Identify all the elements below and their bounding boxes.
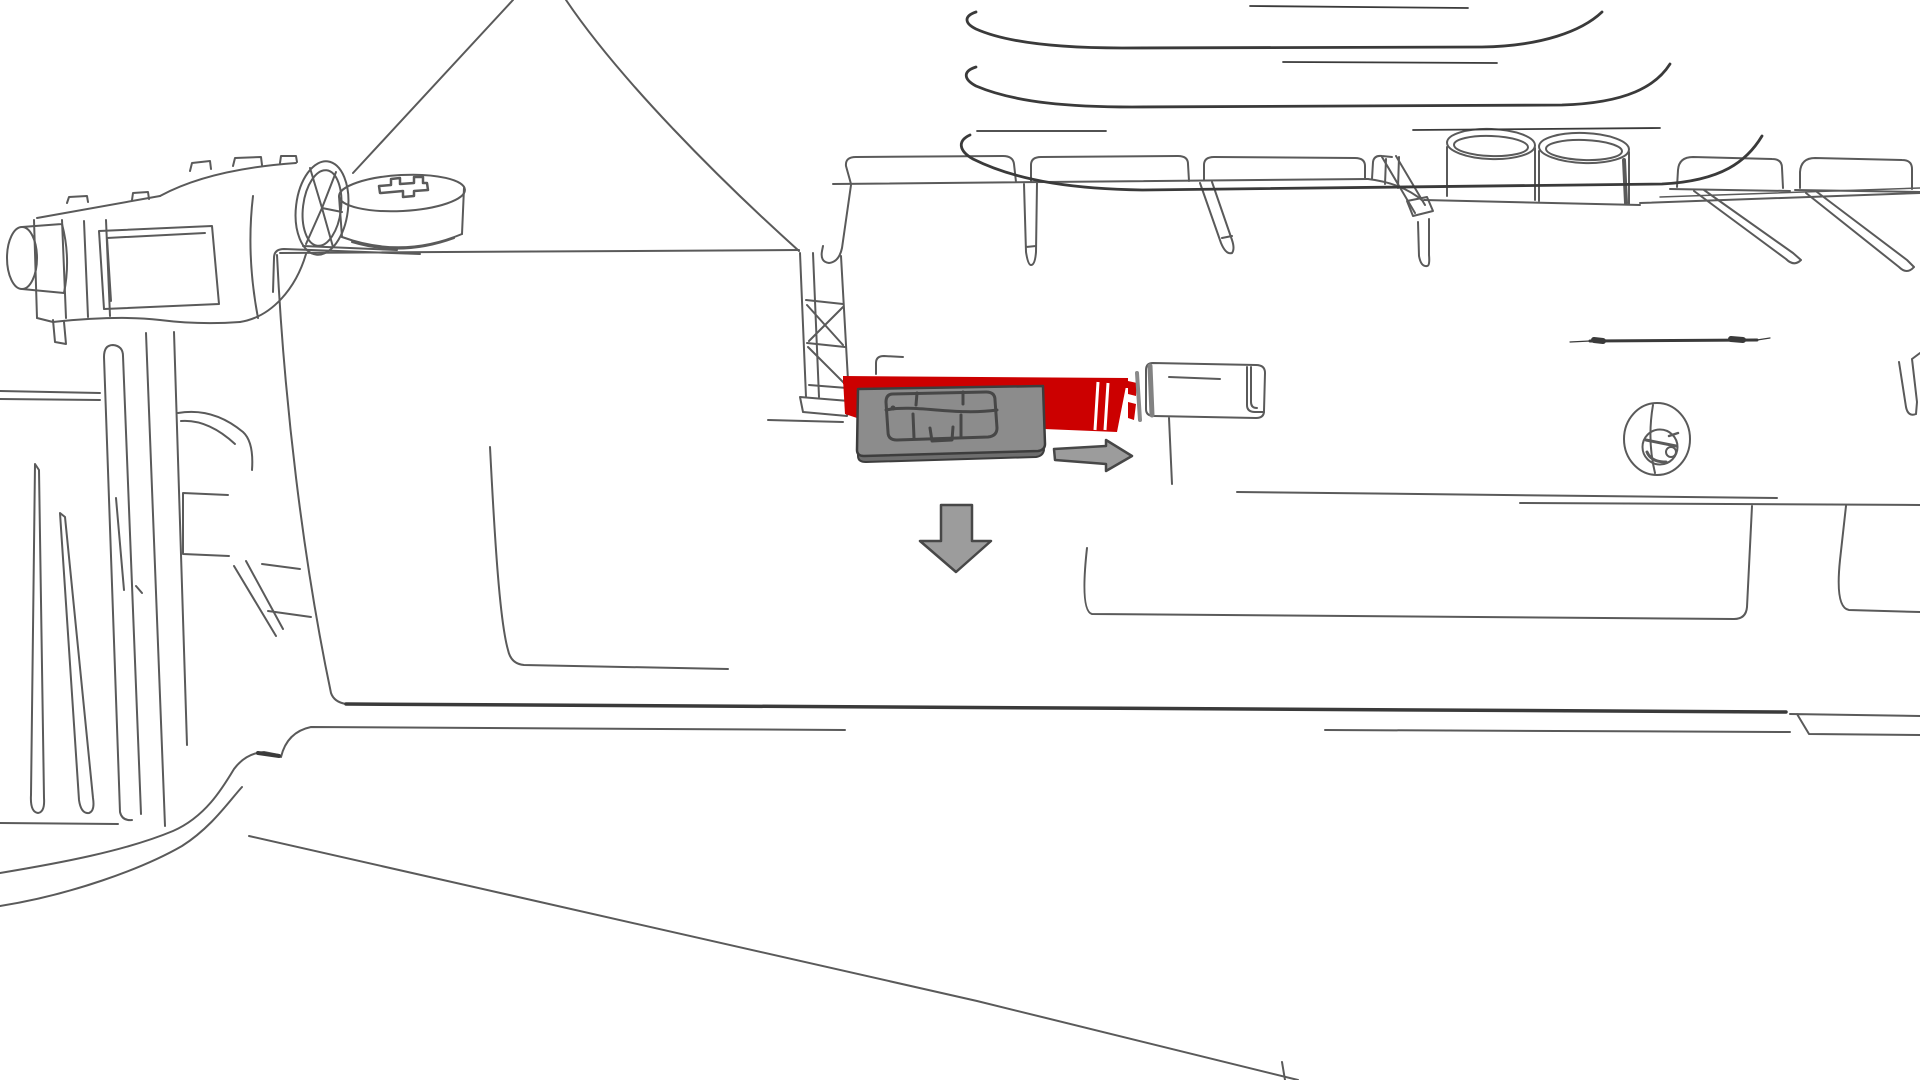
cylindrical-posts [1385, 127, 1640, 205]
slot-red-fragment [1128, 402, 1136, 420]
arrow-down-icon [920, 505, 991, 572]
sim-card [857, 386, 1045, 462]
chassis-edges [0, 704, 1920, 1080]
drum-roller [160, 156, 354, 322]
panel-recess [490, 447, 728, 669]
right-comb-rail [1640, 157, 1920, 415]
main-panel [277, 250, 799, 704]
sim-installation-illustration [0, 0, 1920, 1080]
divider-plate [1624, 160, 1626, 203]
guide-spike [31, 464, 44, 813]
panel-screw [1624, 403, 1690, 475]
panel-slot-line [1570, 338, 1770, 342]
slot-red-fragment [1128, 381, 1137, 396]
sim-card-body [857, 386, 1045, 456]
screw-boss [338, 172, 466, 249]
top-lid-edges [353, 0, 799, 251]
guide-spike [60, 513, 94, 813]
panel-bottom-edge [346, 704, 1786, 712]
carriage-assembly [7, 192, 240, 344]
boss-slot [379, 177, 428, 197]
comb-rail [822, 156, 1433, 266]
chassis-diagonal-line [249, 836, 1298, 1080]
illustration-canvas [0, 0, 1920, 1080]
arrow-right-icon [1054, 440, 1132, 471]
slot-red-block [1044, 379, 1127, 432]
latch-block [1137, 363, 1265, 484]
cable-loops [961, 6, 1762, 190]
